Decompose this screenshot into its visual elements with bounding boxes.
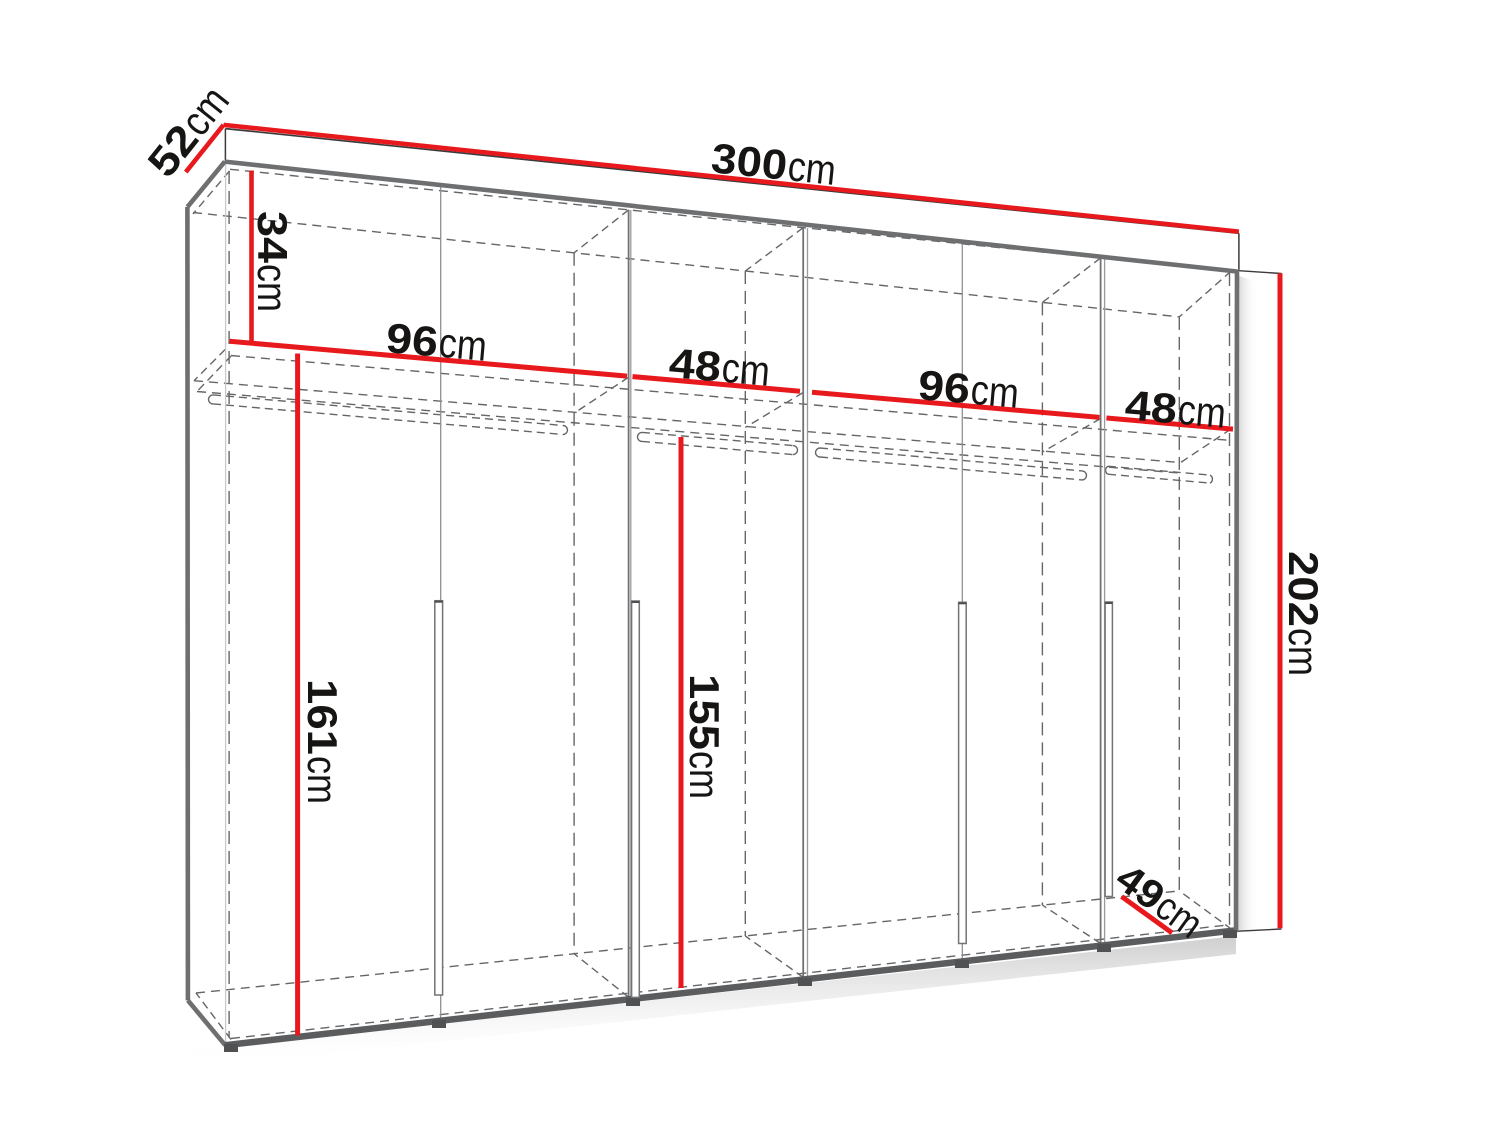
svg-text:48: 48 <box>1123 381 1179 432</box>
svg-text:cm: cm <box>1280 628 1327 676</box>
svg-text:cm: cm <box>1176 386 1228 437</box>
svg-text:cm: cm <box>299 756 346 804</box>
svg-text:cm: cm <box>437 319 489 370</box>
svg-text:48: 48 <box>667 339 723 390</box>
svg-text:96: 96 <box>916 361 972 412</box>
svg-text:cm: cm <box>969 366 1021 417</box>
svg-text:cm: cm <box>720 344 772 395</box>
svg-text:cm: cm <box>786 142 839 194</box>
svg-text:300: 300 <box>709 134 789 189</box>
svg-text:96: 96 <box>384 314 440 365</box>
svg-text:155: 155 <box>681 674 728 750</box>
svg-text:161: 161 <box>299 679 346 755</box>
svg-text:cm: cm <box>249 264 296 312</box>
svg-text:202: 202 <box>1280 551 1327 627</box>
svg-text:cm: cm <box>681 751 728 799</box>
svg-text:34: 34 <box>249 211 296 264</box>
